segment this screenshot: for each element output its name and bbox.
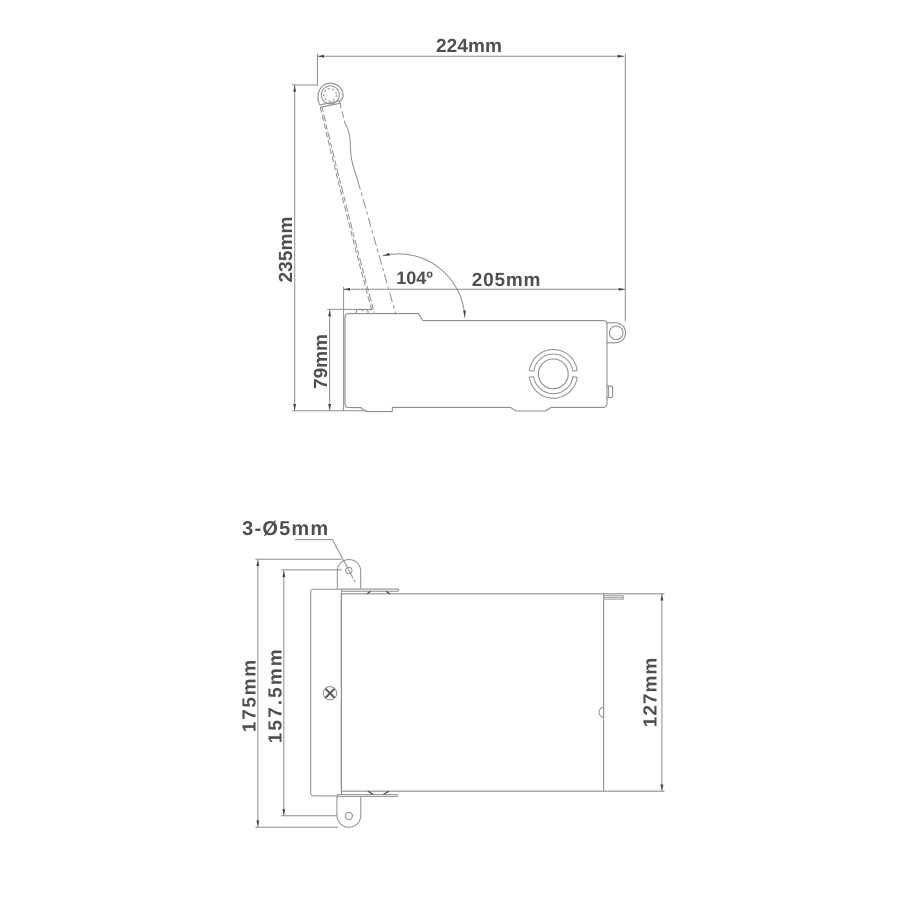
- svg-text:224mm: 224mm: [436, 36, 502, 57]
- svg-text:157.5mm: 157.5mm: [266, 647, 287, 743]
- svg-text:175mm: 175mm: [240, 658, 261, 732]
- svg-text:3-Ø5mm: 3-Ø5mm: [242, 518, 329, 540]
- svg-text:104º: 104º: [396, 268, 433, 288]
- svg-text:79mm: 79mm: [311, 334, 332, 389]
- svg-text:127mm: 127mm: [641, 657, 662, 728]
- svg-text:235mm: 235mm: [276, 217, 297, 283]
- svg-text:205mm: 205mm: [472, 270, 542, 291]
